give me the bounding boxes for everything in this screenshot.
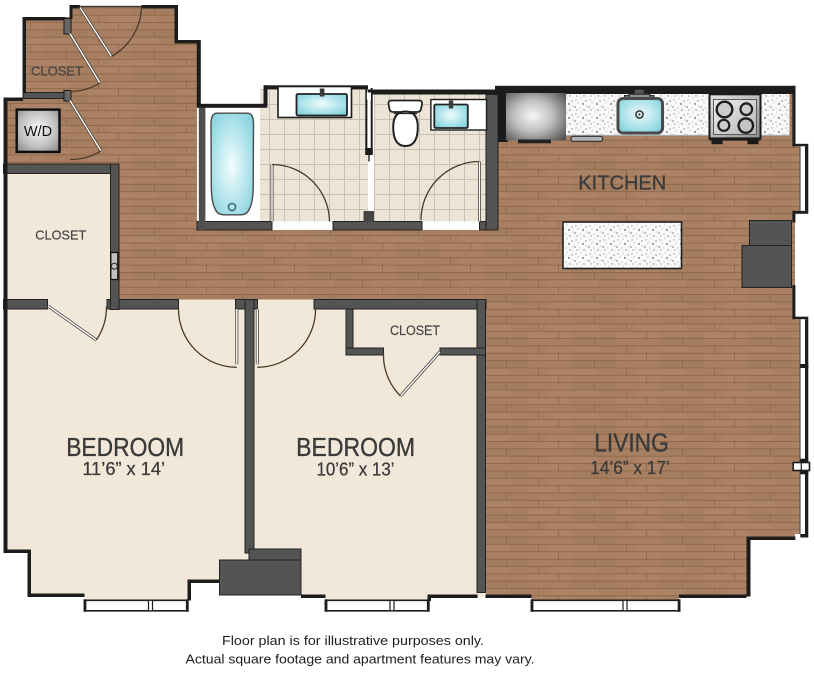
svg-text:BEDROOM: BEDROOM bbox=[296, 432, 415, 462]
svg-text:Floor plan is for illustrative: Floor plan is for illustrative purposes … bbox=[222, 633, 484, 648]
svg-text:LIVING: LIVING bbox=[594, 427, 669, 457]
svg-text:BEDROOM: BEDROOM bbox=[66, 432, 184, 462]
svg-text:CLOSET: CLOSET bbox=[35, 228, 86, 243]
svg-text:11’6” x 14’: 11’6” x 14’ bbox=[82, 459, 165, 479]
svg-text:KITCHEN: KITCHEN bbox=[578, 173, 666, 195]
svg-text:Actual square footage and apar: Actual square footage and apartment feat… bbox=[186, 652, 535, 667]
svg-text:10’6” x 13’: 10’6” x 13’ bbox=[317, 460, 395, 480]
svg-text:CLOSET: CLOSET bbox=[390, 323, 440, 338]
svg-text:CLOSET: CLOSET bbox=[31, 64, 83, 79]
svg-text:14’6” x 17’: 14’6” x 17’ bbox=[590, 458, 670, 478]
svg-text:W/D: W/D bbox=[24, 124, 52, 140]
